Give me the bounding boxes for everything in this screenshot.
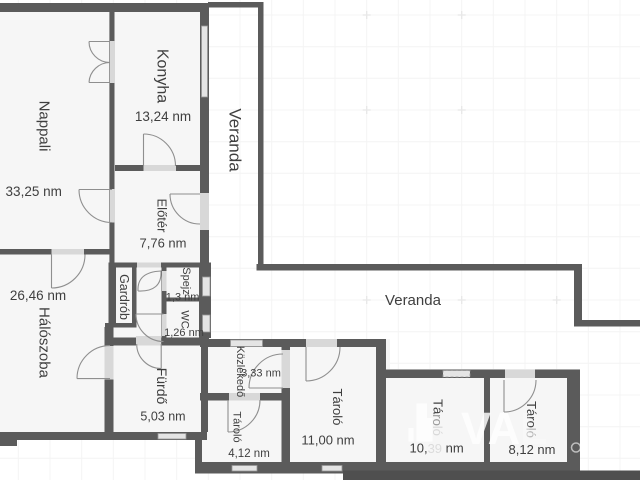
svg-text:Tároló: Tároló xyxy=(231,411,243,442)
svg-text:Gardrób: Gardrób xyxy=(117,274,131,320)
svg-text:WC: WC xyxy=(179,310,191,328)
svg-text:10,39 nm: 10,39 nm xyxy=(409,441,463,456)
svg-text:26,46 nm: 26,46 nm xyxy=(10,288,66,303)
svg-text:13,24 nm: 13,24 nm xyxy=(135,109,191,124)
svg-text:Tároló: Tároló xyxy=(431,399,446,436)
svg-text:L: L xyxy=(520,403,548,454)
svg-text:Tároló: Tároló xyxy=(330,389,345,426)
svg-text:33,25 nm: 33,25 nm xyxy=(6,184,62,199)
svg-text:Előtér: Előtér xyxy=(155,199,170,234)
svg-text:Hálószoba: Hálószoba xyxy=(35,307,52,379)
svg-text:5,03 nm: 5,03 nm xyxy=(140,410,185,424)
svg-text:1,26 nm: 1,26 nm xyxy=(164,327,204,339)
svg-text:Veranda: Veranda xyxy=(385,292,442,309)
svg-text:11,00 nm: 11,00 nm xyxy=(301,433,354,448)
svg-text:Fürdő: Fürdő xyxy=(154,368,170,405)
svg-text:VA: VA xyxy=(461,403,520,454)
svg-text:Veranda: Veranda xyxy=(226,108,245,172)
svg-text:4,12 nm: 4,12 nm xyxy=(228,448,270,460)
svg-text:7,76 nm: 7,76 nm xyxy=(140,236,187,251)
svg-text:3,33 nm: 3,33 nm xyxy=(241,368,281,380)
svg-text:Nappali: Nappali xyxy=(36,101,53,152)
svg-text:Konyha: Konyha xyxy=(154,49,171,103)
svg-text:1,3 nm: 1,3 nm xyxy=(166,292,200,304)
